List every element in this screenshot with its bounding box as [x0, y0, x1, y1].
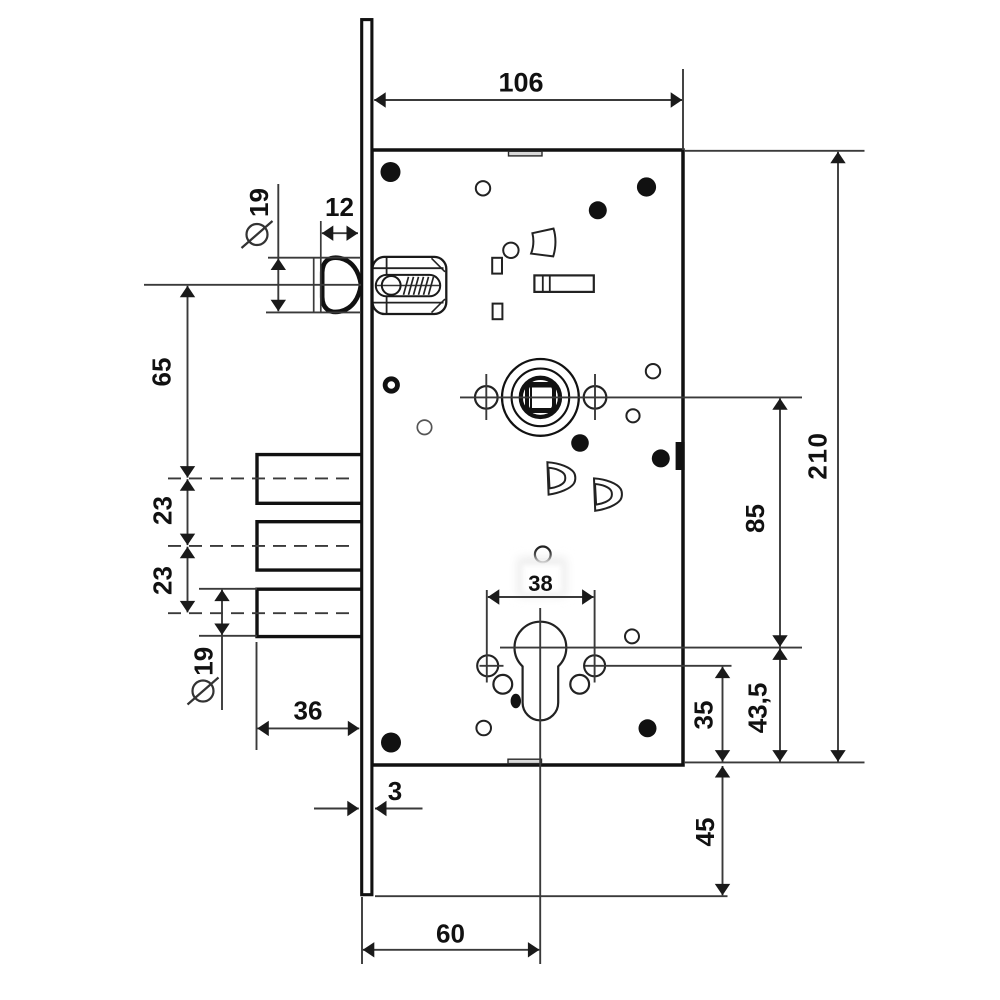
svg-text:19: 19 — [189, 647, 219, 676]
svg-text:43,5: 43,5 — [743, 683, 773, 734]
svg-text:23: 23 — [148, 566, 178, 595]
svg-text:85: 85 — [740, 504, 770, 533]
svg-text:106: 106 — [498, 68, 543, 98]
svg-text:35: 35 — [689, 701, 719, 730]
svg-text:19: 19 — [244, 188, 274, 217]
svg-text:45: 45 — [690, 818, 720, 847]
svg-text:210: 210 — [803, 431, 833, 479]
svg-text:12: 12 — [325, 192, 354, 222]
svg-text:65: 65 — [147, 358, 177, 387]
svg-text:60: 60 — [436, 919, 465, 949]
svg-text:3: 3 — [388, 776, 402, 806]
svg-text:23: 23 — [148, 496, 178, 525]
svg-text:38: 38 — [528, 571, 552, 596]
svg-text:36: 36 — [294, 696, 323, 726]
